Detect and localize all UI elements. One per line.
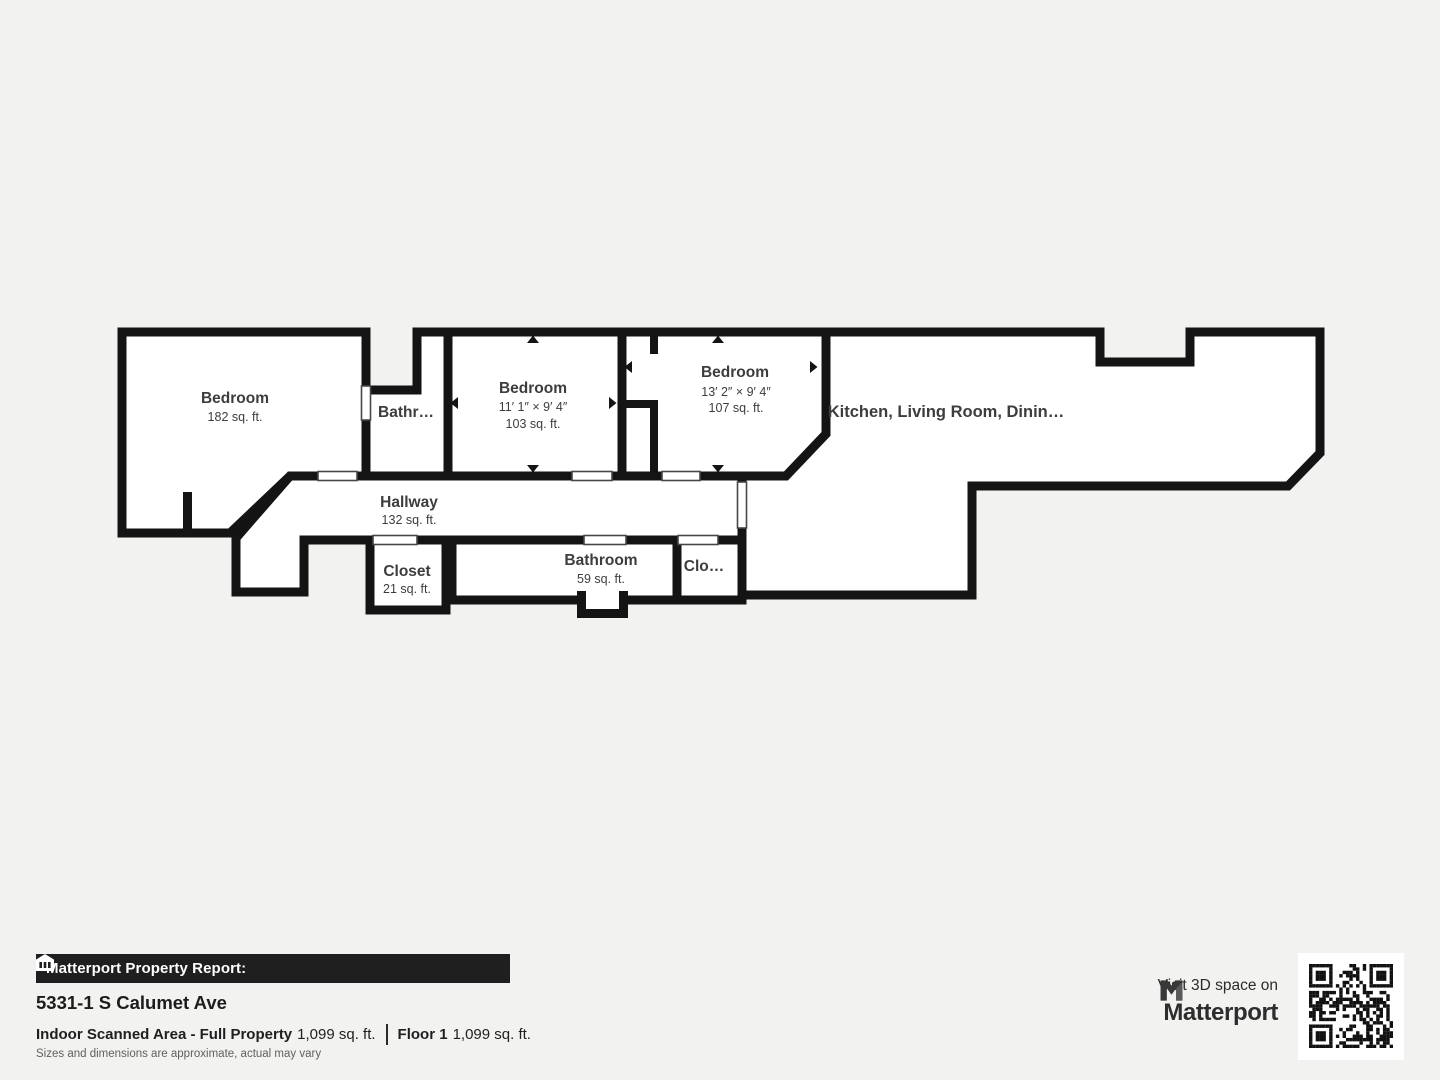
door-hallway-closet-left bbox=[373, 536, 417, 545]
room-label: Bedroom bbox=[499, 380, 567, 397]
room-label: Closet bbox=[383, 563, 430, 580]
room-label: Clo… bbox=[684, 558, 724, 575]
room-dims: 11′ 1″ × 9′ 4″ bbox=[499, 400, 568, 414]
house-icon bbox=[36, 954, 54, 971]
room-area: 59 sq. ft. bbox=[577, 572, 625, 586]
room-bathroom-bottom-outline bbox=[452, 540, 677, 600]
report-header-bar: Matterport Property Report: bbox=[36, 954, 510, 983]
bedroom-right-nook-wall-v bbox=[650, 400, 658, 476]
room-label: Hallway bbox=[380, 494, 438, 511]
bedroom-right-wall-stub bbox=[650, 328, 658, 354]
room-label: Bedroom bbox=[701, 364, 769, 381]
stats-divider bbox=[386, 1024, 388, 1045]
room-great-room-outline bbox=[742, 332, 1320, 595]
door-hallway-closet-right bbox=[678, 536, 718, 545]
room-label: Bathroom bbox=[564, 552, 637, 569]
matterport-floor-plan-page: Bedroom 182 sq. ft. Bathr… Bedroom 11′ 1… bbox=[0, 0, 1440, 1080]
room-area: 132 sq. ft. bbox=[382, 513, 437, 527]
floor-label: Floor 1 bbox=[398, 1026, 448, 1043]
matterport-brand: Matterport bbox=[1163, 999, 1278, 1027]
room-label: Kitchen, Living Room, Dinin… bbox=[828, 403, 1065, 421]
visit-3d-space-block: Visit 3D space on Matterport bbox=[1158, 977, 1278, 1027]
dimensions-disclaimer: Sizes and dimensions are approximate, ac… bbox=[36, 1048, 321, 1060]
door-hallway-bedroom-right bbox=[662, 472, 700, 481]
door-hallway-bathroom-bottom bbox=[584, 536, 626, 545]
room-area: 107 sq. ft. bbox=[709, 401, 764, 415]
room-area: 21 sq. ft. bbox=[383, 582, 431, 596]
qr-code-pattern bbox=[1309, 964, 1393, 1048]
bedroom-left-wall-stub bbox=[183, 492, 192, 534]
qr-code bbox=[1298, 953, 1404, 1060]
floor-plan: Bedroom 182 sq. ft. Bathr… Bedroom 11′ 1… bbox=[0, 0, 1440, 1080]
bathroom-bump-interior bbox=[586, 586, 619, 609]
scanned-area-label: Indoor Scanned Area - Full Property bbox=[36, 1026, 292, 1043]
door-hallway-great-room bbox=[738, 482, 747, 528]
floor-area-value: 1,099 sq. ft. bbox=[453, 1026, 531, 1043]
room-label: Bedroom bbox=[201, 390, 269, 407]
area-stats-line: Indoor Scanned Area - Full Property 1,09… bbox=[36, 1024, 531, 1045]
door-bedroom-left-bathroom bbox=[362, 386, 371, 420]
matterport-logo-icon bbox=[1158, 977, 1185, 1004]
room-area: 103 sq. ft. bbox=[506, 417, 561, 431]
room-dims: 13′ 2″ × 9′ 4″ bbox=[701, 385, 771, 399]
room-label: Bathr… bbox=[378, 404, 434, 421]
door-hallway-bedroom-left bbox=[318, 472, 357, 481]
report-bar-title: Matterport Property Report: bbox=[46, 960, 246, 977]
door-hallway-bedroom-mid bbox=[572, 472, 612, 481]
room-area: 182 sq. ft. bbox=[208, 410, 263, 424]
scanned-area-value: 1,099 sq. ft. bbox=[297, 1026, 375, 1043]
property-address: 5331-1 S Calumet Ave bbox=[36, 992, 227, 1014]
